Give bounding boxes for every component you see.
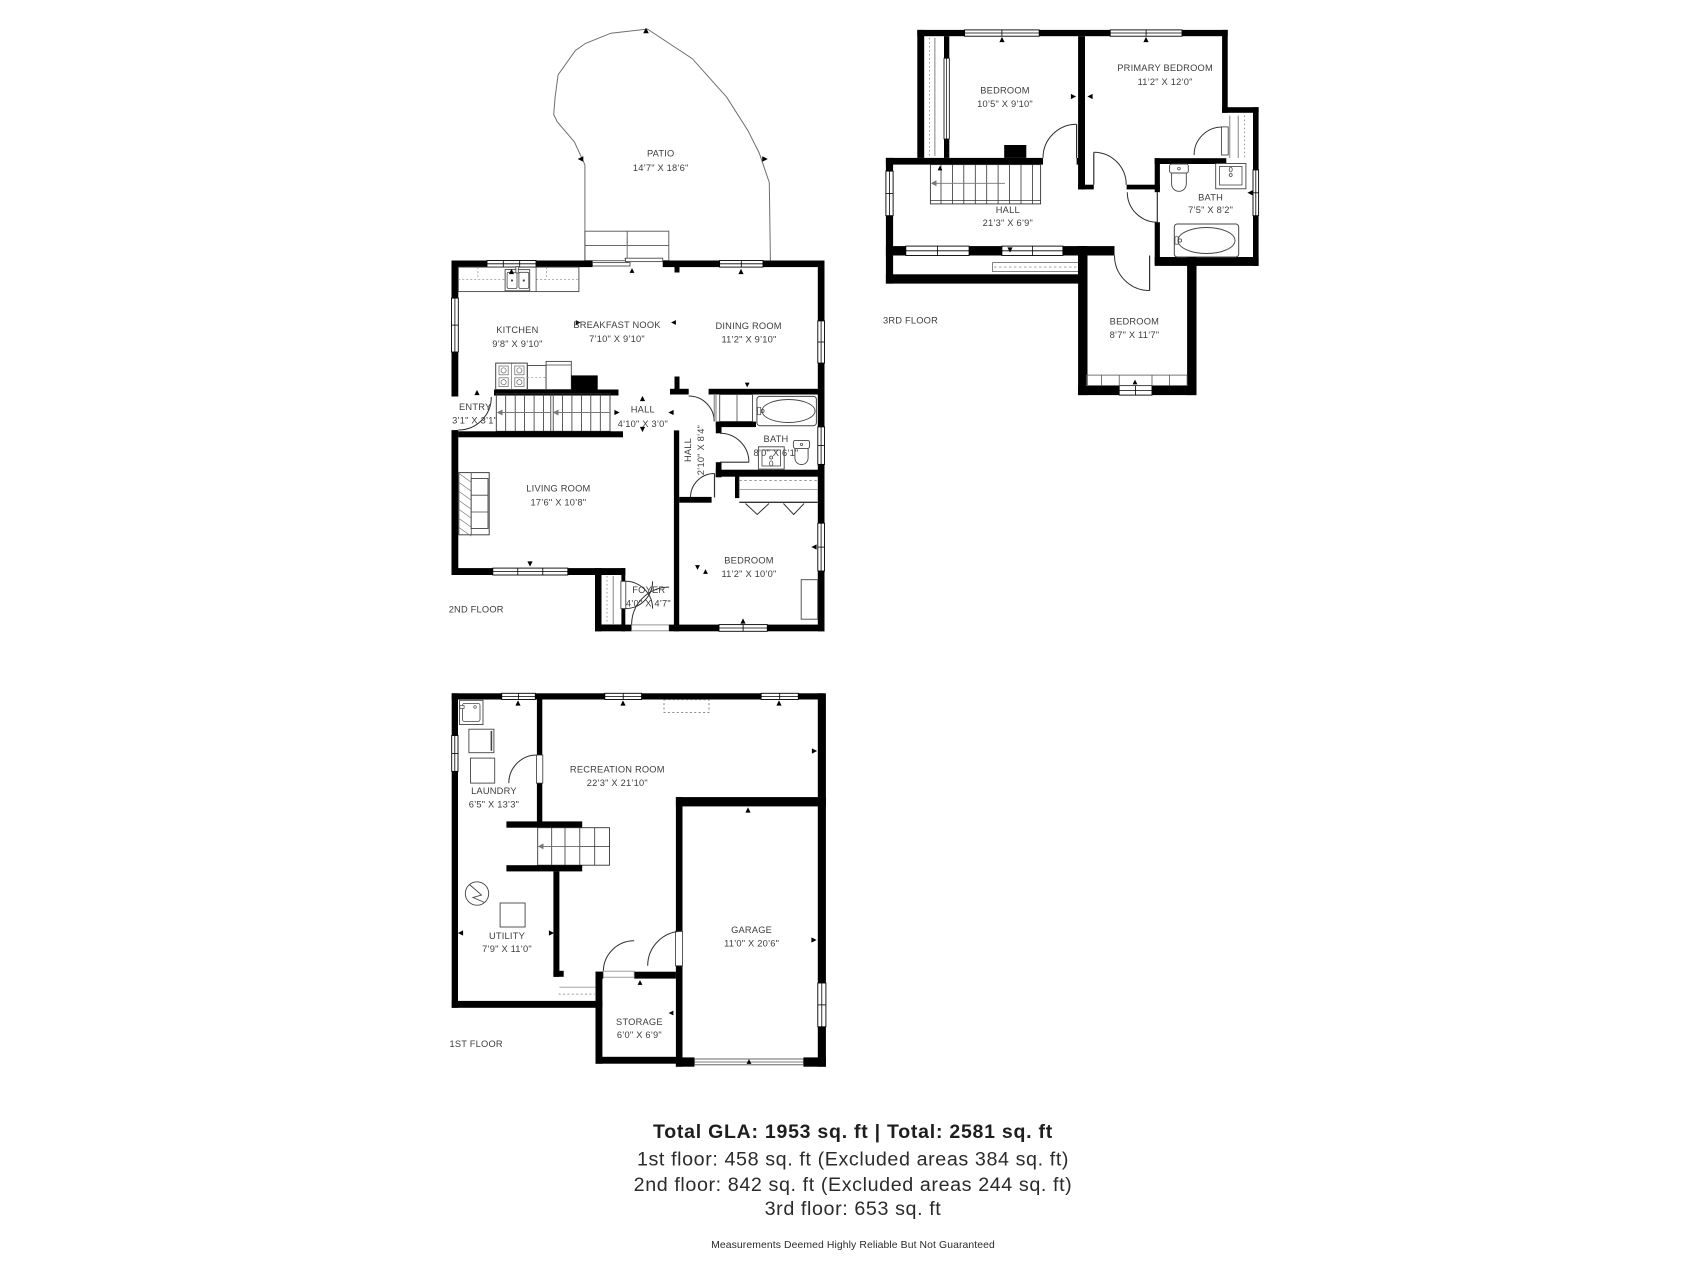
svg-text:11’2" X 12’0": 11’2" X 12’0" xyxy=(1138,77,1193,87)
svg-text:11’2" X 9’10": 11’2" X 9’10" xyxy=(721,335,776,345)
svg-text:LAUNDRY: LAUNDRY xyxy=(471,786,517,796)
svg-text:BATH: BATH xyxy=(1198,192,1223,202)
svg-text:7’9" X 11’0": 7’9" X 11’0" xyxy=(482,944,532,954)
svg-text:17’6" X 10’8": 17’6" X 10’8" xyxy=(531,497,587,507)
svg-text:BEDROOM: BEDROOM xyxy=(980,86,1029,96)
svg-text:9’8" X 9’10": 9’8" X 9’10" xyxy=(492,339,542,349)
svg-text:PATIO: PATIO xyxy=(647,149,675,159)
svg-text:7’10" X 9’10": 7’10" X 9’10" xyxy=(589,334,645,344)
svg-text:3RD FLOOR: 3RD FLOOR xyxy=(883,315,938,325)
svg-text:PRIMARY BEDROOM: PRIMARY BEDROOM xyxy=(1117,63,1213,73)
svg-text:2nd floor: 842 sq. ft (Exclude: 2nd floor: 842 sq. ft (Excluded areas 24… xyxy=(634,1174,1073,1196)
svg-text:22’3" X 21’10": 22’3" X 21’10" xyxy=(587,778,648,788)
svg-text:HALL: HALL xyxy=(683,438,693,462)
svg-text:2’10" X 8’4": 2’10" X 8’4" xyxy=(696,425,706,475)
svg-text:1st floor: 458 sq. ft (Exclude: 1st floor: 458 sq. ft (Excluded areas 38… xyxy=(637,1149,1069,1171)
svg-text:3’1" X 3’1": 3’1" X 3’1" xyxy=(452,416,497,426)
svg-text:3rd floor: 653 sq. ft: 3rd floor: 653 sq. ft xyxy=(765,1198,942,1220)
svg-text:STORAGE: STORAGE xyxy=(616,1017,663,1027)
svg-text:8’7" X 11’7": 8’7" X 11’7" xyxy=(1110,330,1160,340)
svg-text:BREAKFAST NOOK: BREAKFAST NOOK xyxy=(573,320,661,330)
svg-text:14’7" X 18’6": 14’7" X 18’6" xyxy=(633,163,689,173)
svg-text:DINING ROOM: DINING ROOM xyxy=(715,321,781,331)
svg-text:RECREATION ROOM: RECREATION ROOM xyxy=(570,764,665,774)
svg-text:6’0" X 6’9": 6’0" X 6’9" xyxy=(617,1030,662,1040)
svg-text:4’0" X 4’7": 4’0" X 4’7" xyxy=(626,599,671,609)
svg-text:HALL: HALL xyxy=(631,405,655,415)
svg-text:FOYER: FOYER xyxy=(632,585,665,595)
svg-text:1ST FLOOR: 1ST FLOOR xyxy=(450,1039,503,1049)
svg-text:ENTRY: ENTRY xyxy=(459,402,491,412)
svg-text:8’0" X 6’1": 8’0" X 6’1" xyxy=(754,448,799,458)
svg-text:BEDROOM: BEDROOM xyxy=(724,555,773,565)
svg-text:BATH: BATH xyxy=(764,434,789,444)
svg-text:UTILITY: UTILITY xyxy=(489,931,525,941)
svg-text:Measurements Deemed Highly Rel: Measurements Deemed Highly Reliable But … xyxy=(711,1240,995,1251)
svg-text:11’0" X 20’6": 11’0" X 20’6" xyxy=(724,939,779,949)
svg-text:11’2" X 10’0": 11’2" X 10’0" xyxy=(721,569,776,579)
svg-text:BEDROOM: BEDROOM xyxy=(1110,317,1159,327)
svg-text:21’3" X 6’9": 21’3" X 6’9" xyxy=(983,218,1033,228)
svg-text:LIVING ROOM: LIVING ROOM xyxy=(526,484,590,494)
svg-text:10’5" X 9’10": 10’5" X 9’10" xyxy=(977,99,1033,109)
svg-text:Total GLA: 1953 sq. ft | Total: Total GLA: 1953 sq. ft | Total: 2581 sq.… xyxy=(653,1121,1053,1143)
svg-text:6’5" X 13’3": 6’5" X 13’3" xyxy=(469,800,519,810)
svg-text:2ND FLOOR: 2ND FLOOR xyxy=(449,605,504,615)
svg-text:HALL: HALL xyxy=(996,205,1020,215)
svg-text:7’5" X 8’2": 7’5" X 8’2" xyxy=(1188,205,1233,215)
svg-text:GARAGE: GARAGE xyxy=(731,925,772,935)
svg-text:KITCHEN: KITCHEN xyxy=(496,325,538,335)
